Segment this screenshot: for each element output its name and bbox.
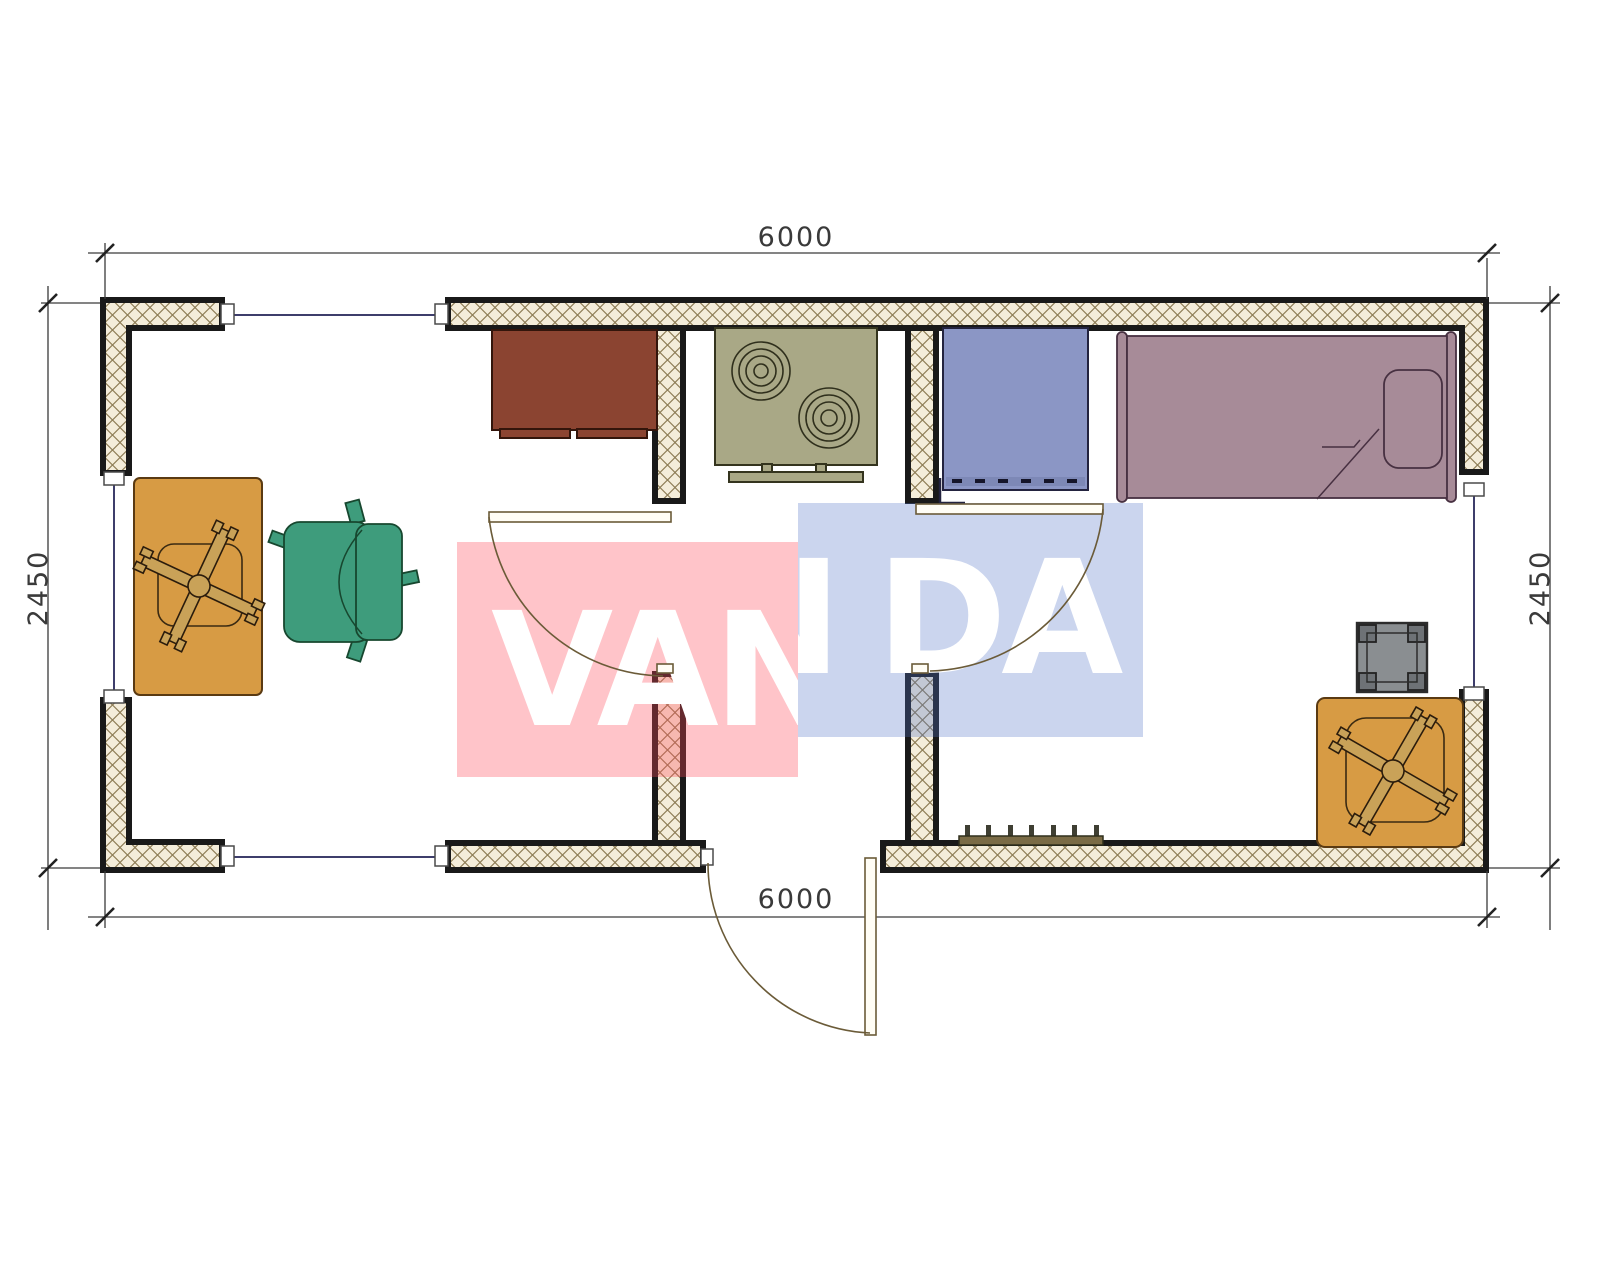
door-swing-arc <box>708 863 870 1033</box>
floor-plan-page: 6000 6000 2450 2450 VAN <box>0 0 1600 1280</box>
door-leaf <box>916 504 1103 514</box>
door-strike <box>657 664 673 673</box>
door-leaf <box>489 512 671 522</box>
door-swing-arc <box>930 509 1103 671</box>
door-swing-arc <box>489 517 663 676</box>
door-kitchen-bedroom <box>912 504 1103 673</box>
door-living-kitchen <box>489 512 673 676</box>
door-strike <box>912 664 928 673</box>
door-entrance <box>701 849 876 1035</box>
door-frame-cap <box>701 849 713 865</box>
doors-layer <box>0 0 1600 1280</box>
door-leaf <box>865 858 876 1035</box>
